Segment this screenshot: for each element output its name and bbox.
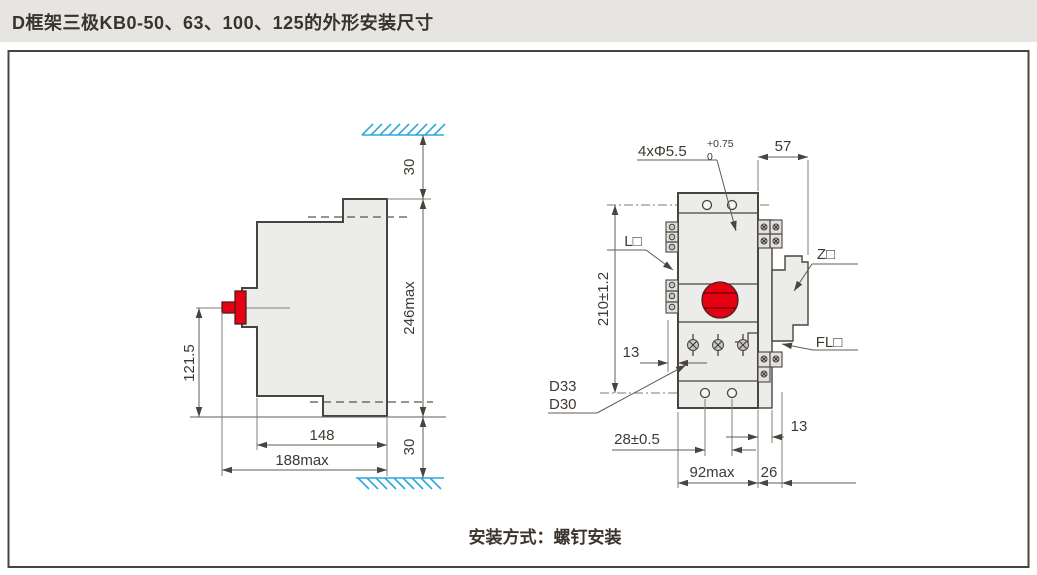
install-method-caption: 安装方式：螺钉安装	[469, 527, 622, 547]
dim-depth-max: 188max	[275, 452, 329, 469]
dim-mount-holes: 4xΦ5.5	[638, 143, 687, 160]
content-panel-border	[9, 51, 1029, 567]
left-terminal-group-upper	[666, 222, 678, 252]
page: { "header": { "title": "D框架三极KB0-50、63、1…	[0, 0, 1037, 575]
label-l-terminal: L□	[624, 233, 641, 250]
dim-depth: 148	[309, 427, 334, 444]
label-fl-module: FL□	[816, 334, 843, 351]
dim-terminal-depth: 13	[623, 344, 640, 361]
dim-width-max: 92max	[689, 464, 735, 481]
left-terminal-group-lower	[666, 280, 678, 313]
drawing-canvas: 30 246max 30 121.5 148 188max	[0, 0, 1037, 575]
dim-pole-pitch: 28±0.5	[614, 431, 660, 448]
label-model-2: D30	[549, 396, 577, 413]
dim-strip-width: 13	[791, 418, 808, 435]
dim-hole-pitch-vertical: 210±1.2	[595, 272, 612, 326]
label-z-module: Z□	[817, 246, 835, 263]
dim-side-attach-depth: 57	[775, 138, 792, 155]
dim-top-clearance: 30	[401, 159, 418, 176]
dim-mount-holes-tol-upper: +0.75	[707, 138, 734, 150]
right-terminal-block	[758, 220, 782, 248]
label-model-1: D33	[549, 378, 577, 395]
dim-height-max: 246max	[401, 281, 418, 335]
dim-mount-holes-tol-lower: 0	[707, 151, 713, 163]
dim-attach-width: 26	[761, 464, 778, 481]
red-button	[702, 282, 738, 318]
dim-bottom-clearance: 30	[401, 439, 418, 456]
dim-handle-height: 121.5	[181, 344, 198, 382]
